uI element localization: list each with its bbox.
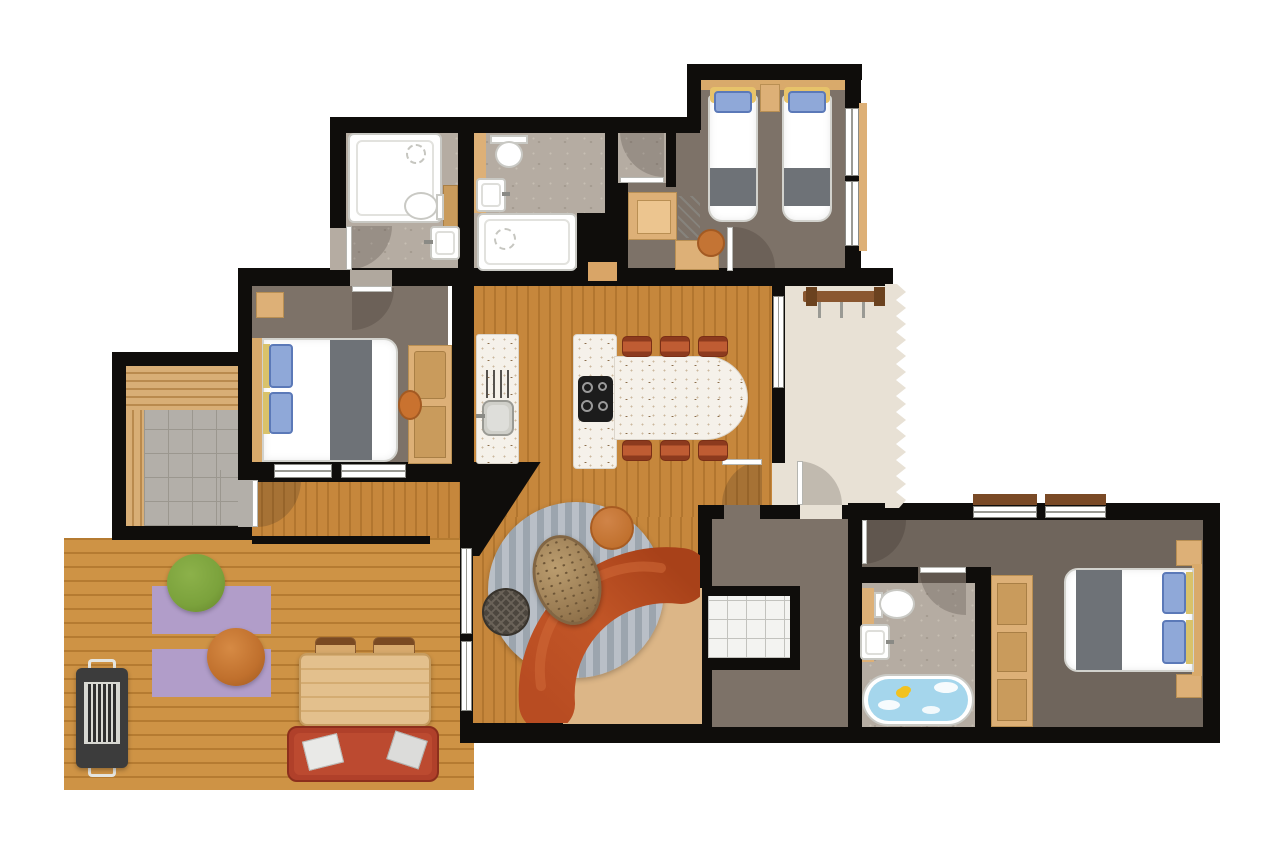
burner [581, 400, 593, 412]
sauna-bench-left [126, 410, 144, 526]
window [341, 464, 406, 478]
dining-table [614, 356, 748, 440]
wall [760, 505, 800, 519]
wall [700, 727, 1220, 743]
bathtub-drain [406, 144, 426, 164]
chair [398, 390, 422, 420]
faucet-icon [424, 240, 433, 244]
door-opening [724, 505, 760, 519]
bed-blanket [330, 340, 372, 460]
door-opening [800, 505, 842, 519]
wardrobe-inset [997, 632, 1027, 672]
door-opening [330, 228, 346, 270]
orange-bean-bag [207, 628, 265, 686]
coat-rack-bracket [806, 287, 817, 306]
window [461, 548, 472, 634]
nightstand [760, 84, 780, 112]
dining-chair [622, 336, 652, 357]
bed-pillow [788, 91, 826, 113]
burner [582, 382, 593, 393]
dining-chair [698, 336, 728, 357]
wardrobe-inset [997, 679, 1027, 721]
vanity-cabinet [443, 185, 458, 227]
door-leaf [727, 227, 733, 271]
door-leaf [252, 480, 258, 527]
door-leaf [797, 461, 803, 505]
chair [697, 229, 725, 257]
window [274, 464, 332, 478]
wall [687, 64, 701, 130]
window-sill [859, 103, 867, 251]
burner [598, 401, 608, 411]
washbasin-bowl [481, 183, 501, 207]
green-bean-bag [167, 554, 225, 612]
faucet-icon [502, 192, 510, 196]
clothes-rail [678, 196, 700, 238]
window [973, 506, 1037, 518]
terrace-door [461, 641, 472, 711]
wardrobe-inset [997, 583, 1027, 625]
door-opening [238, 480, 252, 527]
window [845, 108, 859, 176]
bed-pillow [1162, 572, 1186, 614]
wall [460, 723, 710, 743]
bed-pillow [269, 344, 293, 388]
nightstand [1176, 540, 1202, 566]
desk-inset [637, 200, 671, 234]
wall [458, 117, 474, 286]
outdoor-table [299, 653, 431, 726]
wall [252, 536, 430, 544]
bed-blanket [710, 168, 756, 206]
wall [666, 117, 676, 187]
coat-hook [840, 302, 843, 318]
bed-pillow [269, 392, 293, 434]
bed-pillow [714, 91, 752, 113]
window-lintel [1045, 494, 1106, 505]
bed-blanket [1076, 570, 1122, 670]
burner [598, 382, 607, 391]
window-lintel [973, 494, 1037, 505]
storage-closet [708, 596, 790, 658]
headboard [252, 338, 262, 462]
door-leaf [620, 177, 664, 183]
wall [452, 268, 474, 468]
entry-junction-floor [772, 463, 798, 505]
dining-chair [698, 440, 728, 461]
dining-chair [660, 336, 690, 357]
nightstand [256, 292, 284, 318]
dish-rack [486, 370, 510, 398]
door-leaf [352, 286, 392, 292]
door-threshold [588, 262, 617, 281]
coat-hook [862, 302, 865, 318]
wall [975, 567, 991, 743]
wall [698, 505, 724, 519]
door-leaf [920, 567, 966, 573]
kitchen-counter [476, 334, 519, 464]
cloud-reflection [878, 700, 900, 710]
dining-chair [660, 440, 690, 461]
washbasin-bowl [865, 630, 885, 655]
wall [848, 567, 918, 583]
sauna-floor [220, 470, 238, 526]
nightstand [1176, 674, 1202, 698]
torn-edge [885, 284, 911, 508]
sauna-bench-top [126, 366, 238, 410]
bed-blanket [784, 168, 830, 206]
window [773, 296, 784, 388]
window [1045, 506, 1106, 518]
headboard-cushion [1186, 572, 1193, 614]
door-leaf [346, 226, 352, 270]
toilet-bowl [404, 192, 438, 220]
door-opening [350, 270, 392, 286]
bbq-grate [84, 682, 120, 744]
cloud-reflection [922, 706, 940, 714]
door-leaf [862, 520, 867, 564]
bed-pillow [1162, 620, 1186, 664]
cloud-reflection [934, 682, 958, 693]
coat-rack-bracket [874, 287, 885, 306]
rubber-duck [896, 688, 909, 698]
window [845, 181, 859, 246]
headboard-cushion [1186, 620, 1193, 664]
coat-hook [818, 302, 821, 318]
floor-plan [0, 0, 1280, 852]
orange-pouf [590, 506, 634, 550]
kitchen-sink-bowl [487, 405, 509, 431]
wardrobe-inset [414, 351, 446, 399]
bathtub-drain [494, 228, 516, 250]
dining-chair [622, 440, 652, 461]
toilet-bowl [879, 589, 915, 619]
door-leaf [722, 459, 762, 465]
washbasin-bowl [435, 231, 455, 255]
faucet-icon [476, 414, 485, 418]
toilet-bowl [495, 141, 523, 168]
dark-pouf [482, 588, 530, 636]
wall [612, 183, 628, 270]
wall [687, 64, 862, 80]
wall [1203, 503, 1220, 743]
faucet-icon [886, 640, 894, 644]
